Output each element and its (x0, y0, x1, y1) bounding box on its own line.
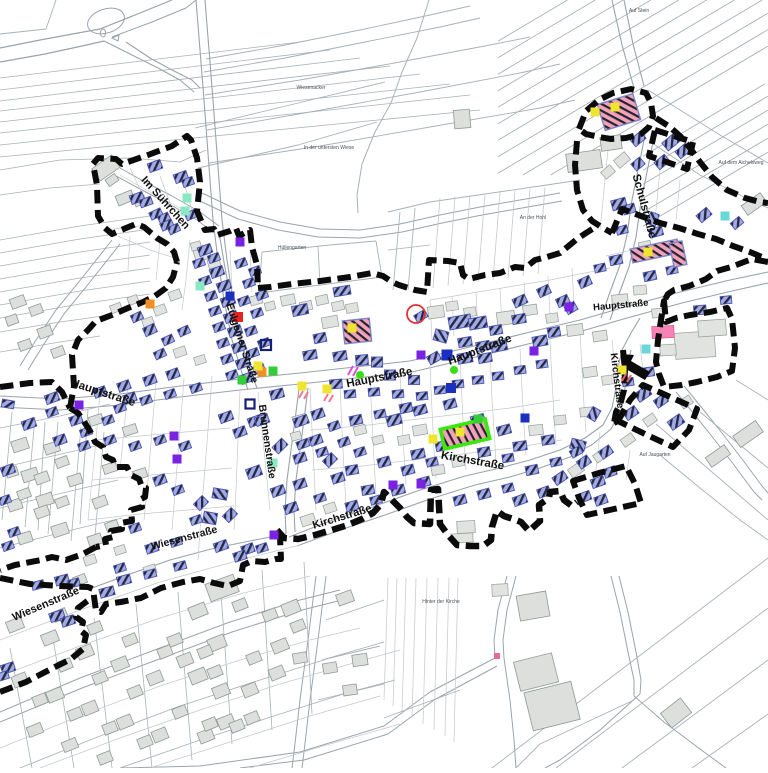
svg-text:Auf dem Aichelsweg: Auf dem Aichelsweg (718, 160, 763, 166)
svg-text:Auf Stein: Auf Stein (629, 8, 650, 14)
svg-text:In der untersten Wiese: In der untersten Wiese (304, 145, 355, 151)
svg-text:Hüllengarten: Hüllengarten (278, 245, 307, 251)
svg-text:Auf Jaugarten: Auf Jaugarten (639, 452, 670, 458)
svg-text:An der Hohl: An der Hohl (520, 215, 546, 221)
svg-text:Hinter der Kirche: Hinter der Kirche (422, 599, 460, 605)
svg-text:Wiesenacker: Wiesenacker (297, 85, 326, 91)
